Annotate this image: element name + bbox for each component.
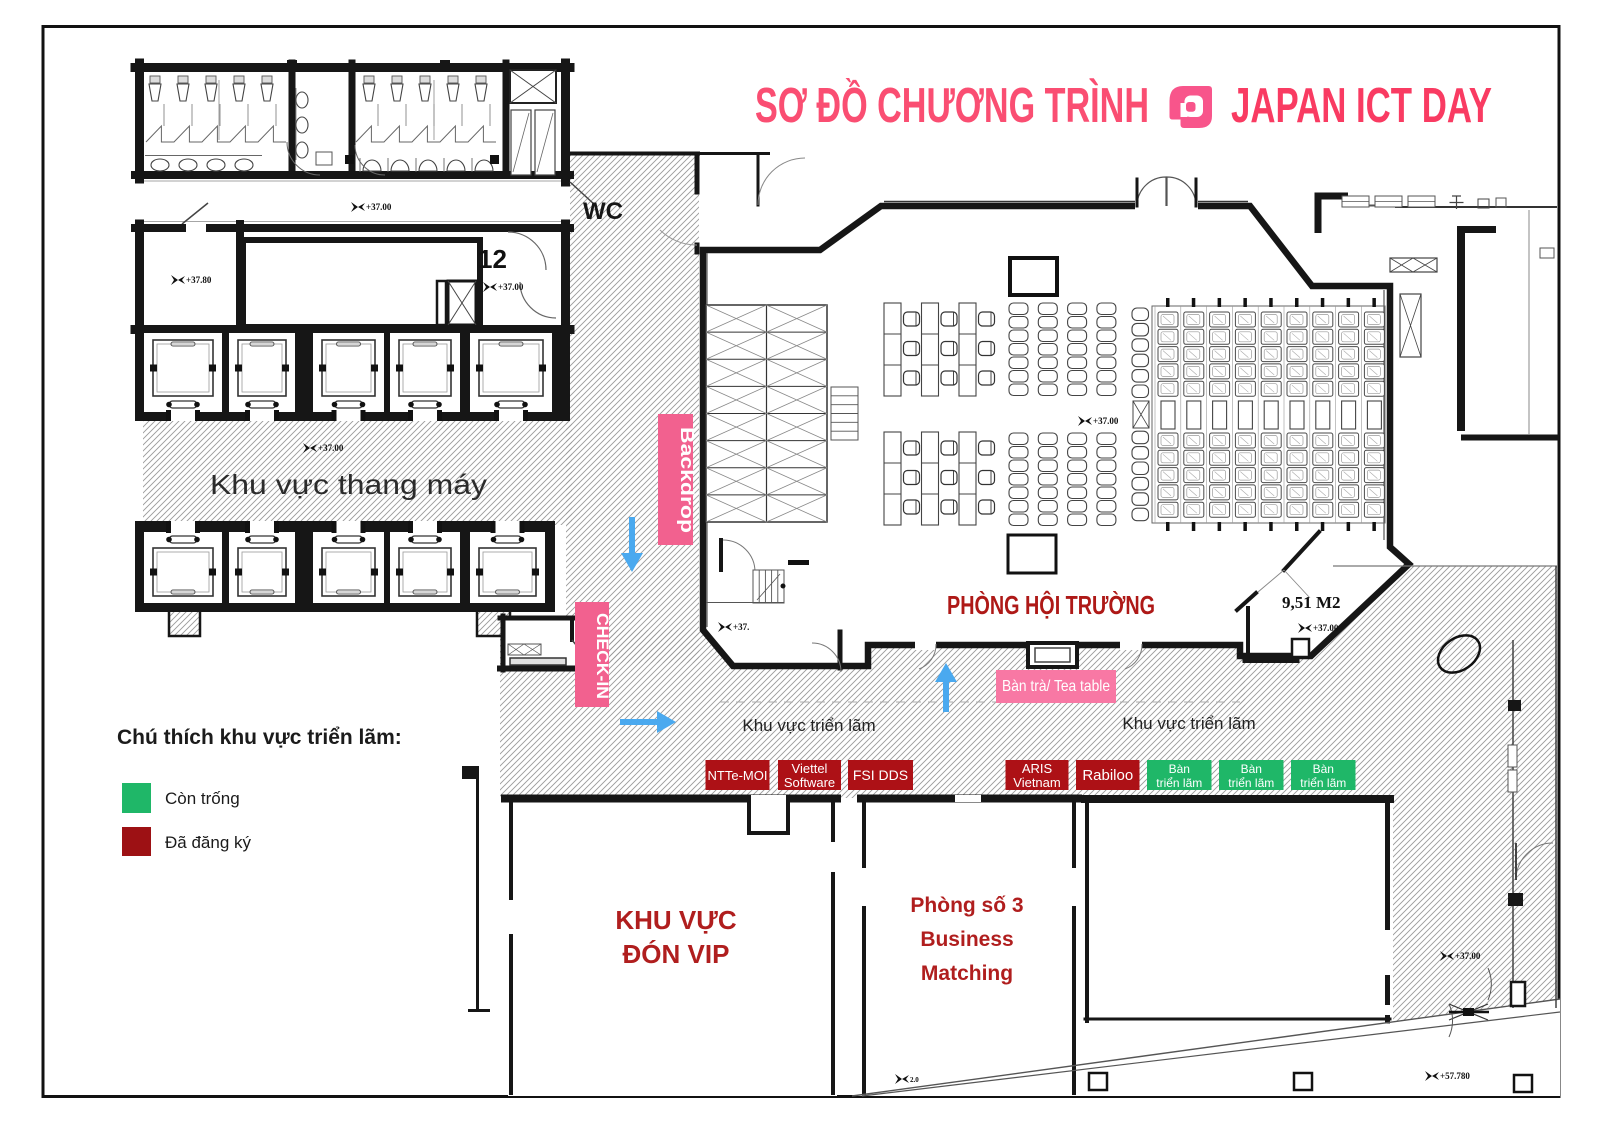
svg-text:FSI DDS: FSI DDS <box>853 767 908 783</box>
svg-text:SƠ ĐỒ CHƯƠNG TRÌNH: SƠ ĐỒ CHƯƠNG TRÌNH <box>755 78 1149 133</box>
svg-text:Bàn: Bàn <box>1313 762 1334 776</box>
svg-text:PHÒNG HỘI TRƯỜNG: PHÒNG HỘI TRƯỜNG <box>947 590 1155 620</box>
svg-text:Bàn: Bàn <box>1169 762 1190 776</box>
svg-text:9,51 M2: 9,51 M2 <box>1282 593 1341 612</box>
svg-text:triển lãm: triển lãm <box>1228 776 1274 790</box>
svg-text:Business: Business <box>920 928 1013 951</box>
svg-text:CHECK-IN: CHECK-IN <box>593 613 612 699</box>
svg-text:NTTe-MOI: NTTe-MOI <box>708 768 768 783</box>
svg-text:Software: Software <box>784 775 835 790</box>
svg-text:+37.00: +37.00 <box>1093 416 1119 426</box>
svg-text:Đã đăng ký: Đã đăng ký <box>165 833 251 852</box>
svg-text:2.0: 2.0 <box>910 1076 919 1084</box>
svg-text:Phòng số 3: Phòng số 3 <box>910 894 1023 917</box>
svg-text:KHU VỰC: KHU VỰC <box>615 905 736 935</box>
svg-text:triển lãm: triển lãm <box>1156 776 1202 790</box>
svg-text:Bàn: Bàn <box>1241 762 1262 776</box>
svg-text:Matching: Matching <box>921 962 1013 985</box>
svg-text:+37.: +37. <box>733 622 749 632</box>
svg-text:+37.00: +37.00 <box>318 443 344 453</box>
svg-text:Chú thích khu vực triển lãm:: Chú thích khu vực triển lãm: <box>117 726 402 749</box>
svg-text:+37.80: +37.80 <box>186 275 212 285</box>
svg-text:+37.00: +37.00 <box>498 282 524 292</box>
svg-text:triển lãm: triển lãm <box>1300 776 1346 790</box>
svg-text:ARIS: ARIS <box>1022 761 1053 776</box>
svg-text:Viettel: Viettel <box>792 761 828 776</box>
svg-text:+57.780: +57.780 <box>1440 1071 1470 1081</box>
svg-text:+37.00: +37.00 <box>1313 623 1339 633</box>
svg-text:+37.00: +37.00 <box>366 202 392 212</box>
svg-text:Bàn trà/ Tea table: Bàn trà/ Tea table <box>1002 678 1110 695</box>
svg-text:JAPAN ICT DAY: JAPAN ICT DAY <box>1231 79 1492 133</box>
svg-text:WC: WC <box>583 198 623 225</box>
svg-text:Khu vực triển lãm: Khu vực triển lãm <box>1122 714 1255 733</box>
svg-text:+37.00: +37.00 <box>1455 951 1481 961</box>
svg-text:ĐÓN VIP: ĐÓN VIP <box>623 939 730 969</box>
svg-text:Khu vực triển lãm: Khu vực triển lãm <box>742 716 875 735</box>
svg-text:Vietnam: Vietnam <box>1013 775 1060 790</box>
svg-text:Còn trống: Còn trống <box>165 789 240 808</box>
svg-text:Khu vực thang máy: Khu vực thang máy <box>210 469 487 500</box>
svg-text:Rabiloo: Rabiloo <box>1082 767 1133 784</box>
svg-text:Backdrop: Backdrop <box>677 427 697 533</box>
svg-text:12: 12 <box>478 244 507 274</box>
